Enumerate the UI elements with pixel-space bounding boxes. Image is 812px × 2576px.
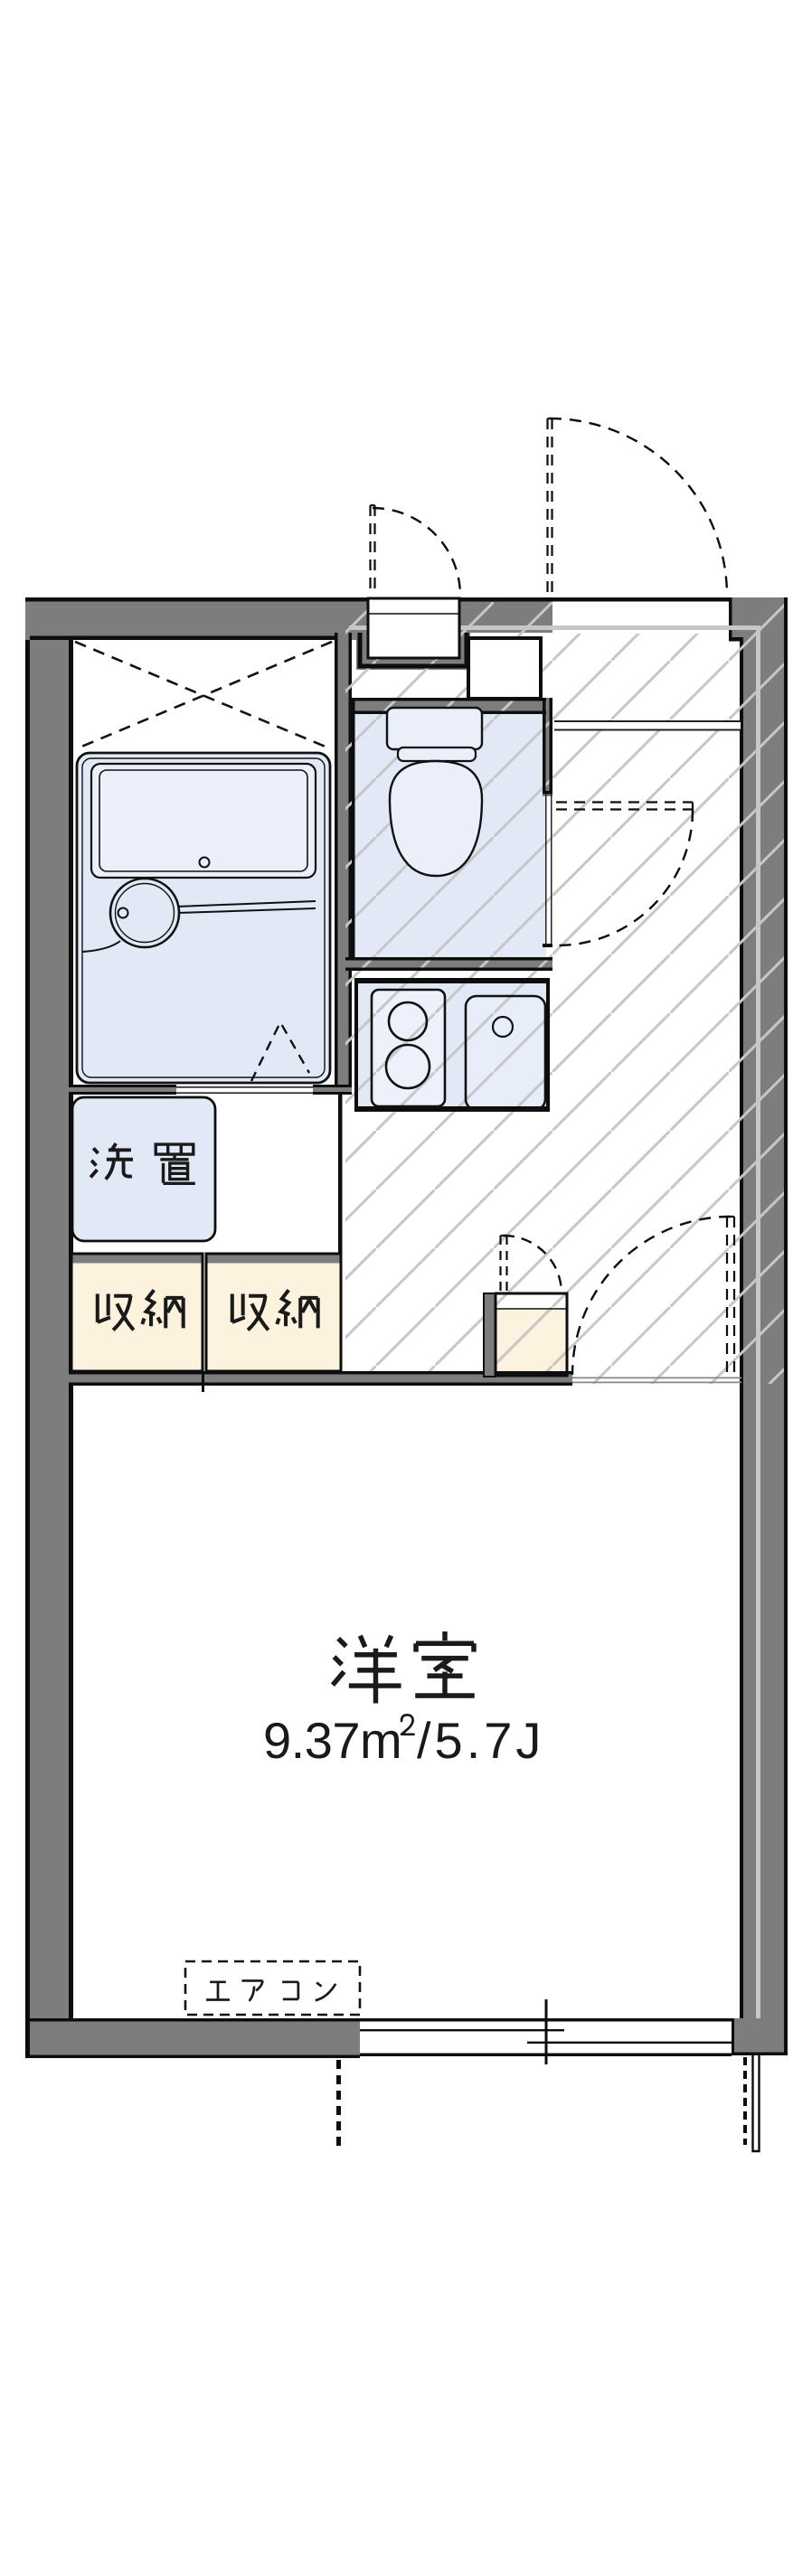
svg-text:/5.7J: /5.7J bbox=[417, 1712, 544, 1769]
svg-text:9.37m: 9.37m bbox=[263, 1712, 401, 1769]
